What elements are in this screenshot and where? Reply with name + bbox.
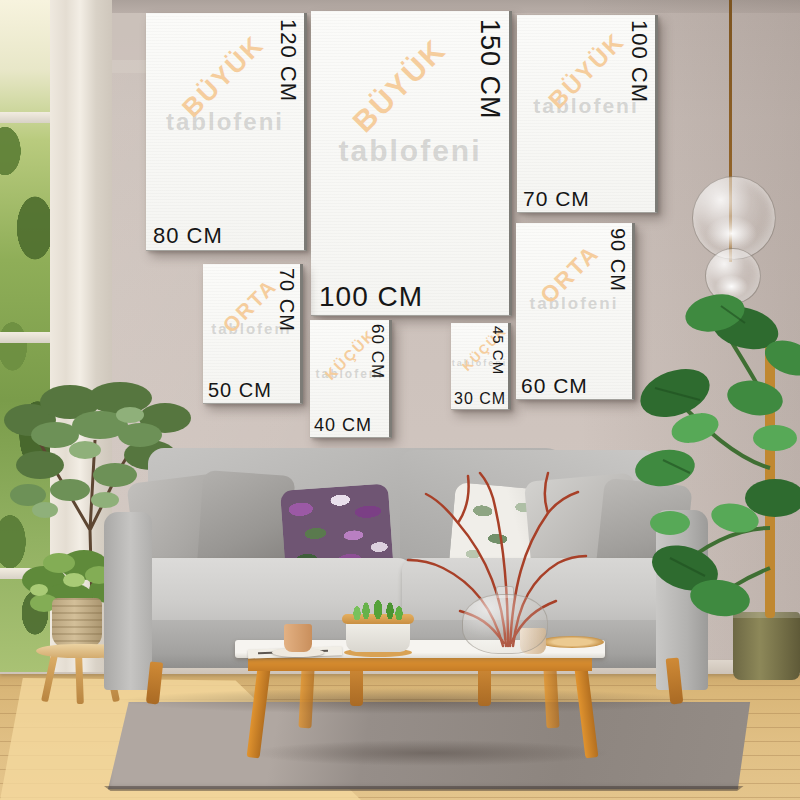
living-room-mockup: tablofeni BÜYÜK 120 CM 80 CM tablofeni B… [0,0,800,800]
width-dimension-label: 30 CM [454,390,506,408]
canvas-mockup-60x90: tablofeni ORTA 90 CM 60 CM [516,223,635,400]
sofa-arm-left [104,512,152,690]
rug-edge [104,786,750,791]
height-dimension-label: 70 CM [275,268,298,332]
height-dimension-label: 150 CM [474,19,505,120]
canvas-mockup-100x150: tablofeni BÜYÜK 150 CM 100 CM [311,11,512,316]
width-dimension-label: 100 CM [319,281,423,313]
woven-planter-basket [52,598,102,648]
width-dimension-label: 80 CM [153,223,223,249]
canvas-mockup-70x100: tablofeni BÜYÜK 100 CM 70 CM [517,15,658,213]
table-apron [248,658,592,671]
canvas-mockup-50x70: tablofeni ORTA 70 CM 50 CM [203,264,303,404]
canvas-mockup-40x60: tablofeni KÜÇÜK 60 CM 40 CM [310,320,392,438]
window-muntin [0,112,50,123]
monstera-plant [625,268,800,628]
table-shadow [250,740,610,766]
sofa-shadow [120,688,700,714]
watermark: tablofeni [339,134,482,168]
window-muntin [0,332,50,343]
coffee-cup-tan [284,624,312,652]
watermark: tablofeni [166,108,284,136]
height-dimension-label: 120 CM [275,19,301,102]
width-dimension-label: 40 CM [314,415,372,436]
height-dimension-label: 100 CM [626,20,652,103]
width-dimension-label: 70 CM [523,187,590,211]
width-dimension-label: 60 CM [521,374,588,398]
canvas-mockup-80x120: tablofeni BÜYÜK 120 CM 80 CM [146,13,307,251]
canvas-mockup-30x45: tablofeni KÜÇÜK 45 CM 30 CM [451,323,511,410]
width-dimension-label: 50 CM [208,379,272,402]
height-dimension-label: 45 CM [490,326,507,375]
glass-vase [462,594,548,654]
height-dimension-label: 60 CM [367,324,387,379]
